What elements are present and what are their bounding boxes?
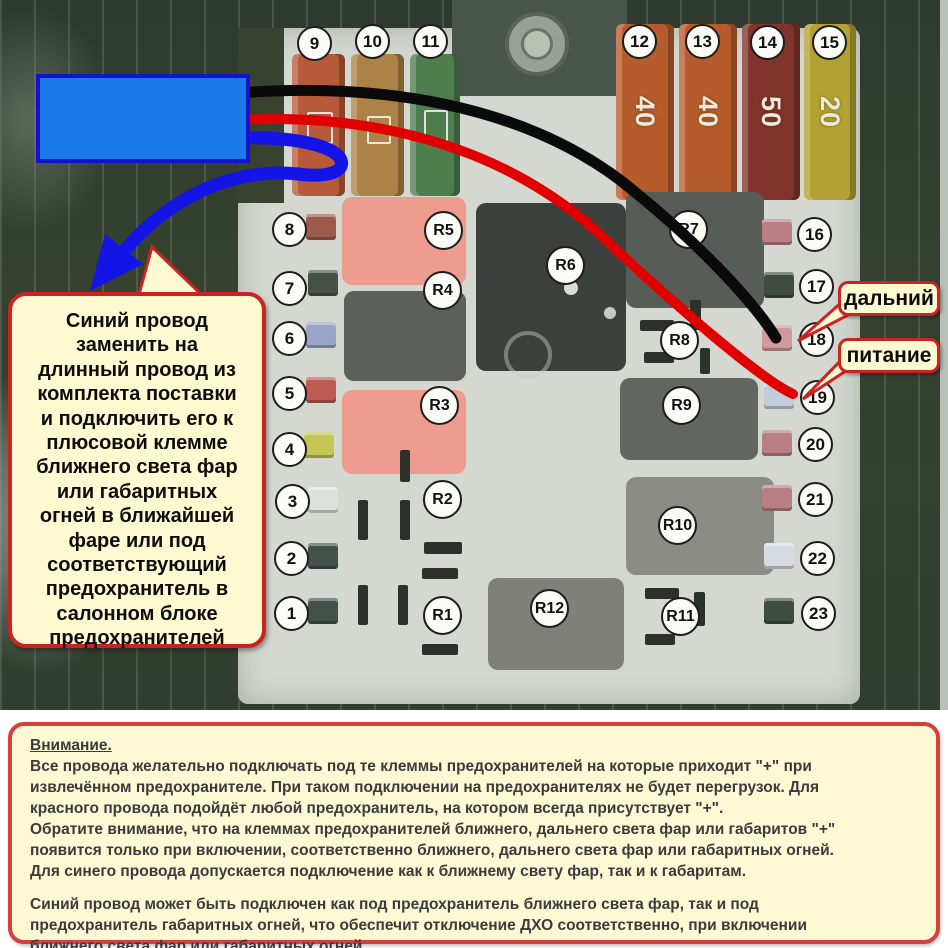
- callout-line: салонном блоке: [12, 602, 262, 626]
- power-label: питание: [838, 338, 940, 373]
- instruction-callout: Синий провод заменить на длинный провод …: [8, 292, 266, 648]
- callout-line: огней в ближайшей: [12, 504, 262, 528]
- callout-line: предохранитель в: [12, 577, 262, 601]
- blue-connector-box: [36, 74, 250, 163]
- paragraph-gap: [30, 882, 918, 894]
- callout-line: или габаритных: [12, 480, 262, 504]
- callout-line: и подключить его к: [12, 407, 262, 431]
- notice-line: Синий провод может быть подключен как по…: [30, 894, 918, 915]
- callout-line: Синий провод: [12, 309, 262, 333]
- callout-line: длинный провод из: [12, 358, 262, 382]
- notice-line: Обратите внимание, что на клеммах предох…: [30, 819, 918, 840]
- notice-line: красного провода подойдёт любой предохра…: [30, 798, 918, 819]
- high-beam-label: дальний: [838, 281, 940, 316]
- notice-line: предохранитель габаритных огней, что обе…: [30, 915, 918, 936]
- callout-line: ближнего света фар: [12, 455, 262, 479]
- callout-line: комплекта поставки: [12, 382, 262, 406]
- callout-line: плюсовой клемме: [12, 431, 262, 455]
- black-wire: [238, 90, 776, 338]
- callout-line: фаре или под: [12, 529, 262, 553]
- notice-line: ближнего света фар или габаритных огней.: [30, 936, 918, 948]
- notice-line: появится только при включении, соответст…: [30, 840, 918, 861]
- engine-bay-photo: 40 40 50 20: [0, 0, 948, 710]
- notice-box: Внимание. Все провода желательно подключ…: [8, 722, 940, 944]
- notice-line: извлечённом предохранителе. При таком по…: [30, 777, 918, 798]
- annotated-fusebox-figure: 40 40 50 20: [0, 0, 948, 948]
- callout-line: заменить на: [12, 333, 262, 357]
- callout-tail: [138, 247, 205, 298]
- notice-title: Внимание.: [30, 735, 918, 756]
- callout-line: соответствующий: [12, 553, 262, 577]
- notice-line: Для синего провода допускается подключен…: [30, 861, 918, 882]
- callout-line: предохранителей: [12, 626, 262, 650]
- notice-line: Все провода желательно подключать под те…: [30, 756, 918, 777]
